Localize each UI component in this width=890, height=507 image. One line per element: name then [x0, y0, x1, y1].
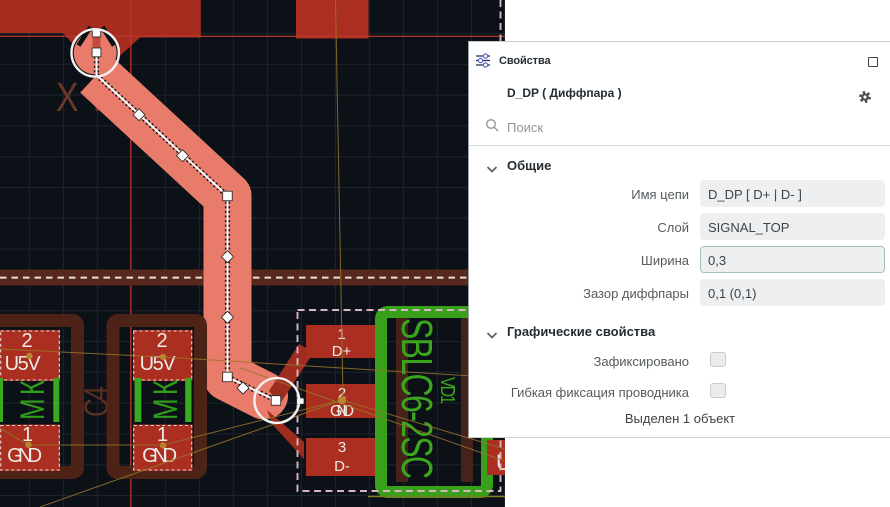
- svg-text:VD1: VD1: [437, 377, 459, 404]
- svg-text:3: 3: [338, 439, 346, 456]
- svg-text:МК: МК: [15, 380, 52, 420]
- svg-text:GND: GND: [7, 445, 42, 467]
- svg-text:МК: МК: [148, 380, 185, 420]
- svg-text:GND: GND: [330, 403, 354, 420]
- svg-text:U5V: U5V: [5, 353, 42, 375]
- svg-text:GND: GND: [142, 445, 177, 467]
- svg-text:2: 2: [21, 330, 32, 352]
- svg-text:D-: D-: [334, 458, 350, 475]
- svg-text:2: 2: [156, 330, 167, 352]
- svg-text:SBLC6-2SC: SBLC6-2SC: [392, 318, 440, 479]
